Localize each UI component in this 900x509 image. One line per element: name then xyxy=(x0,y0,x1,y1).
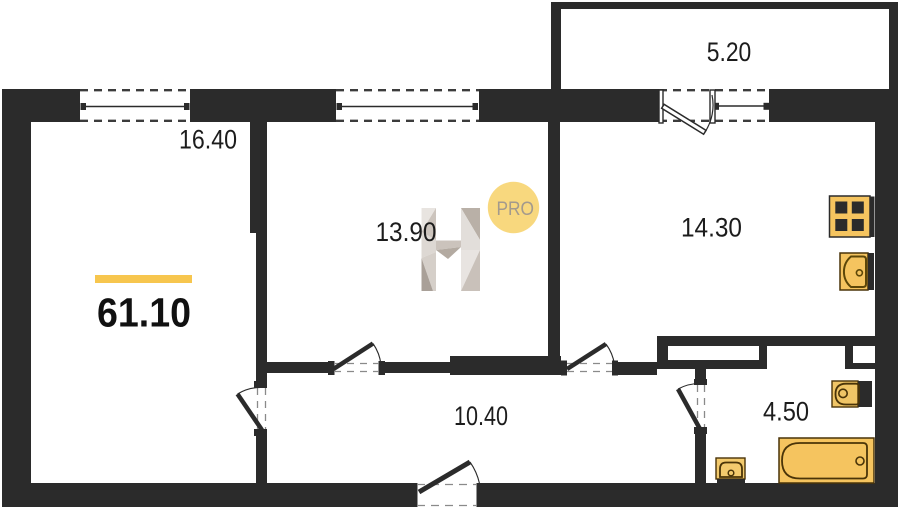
svg-text:16.40: 16.40 xyxy=(179,125,237,155)
svg-text:13.90: 13.90 xyxy=(376,217,437,247)
svg-text:4.50: 4.50 xyxy=(763,397,809,427)
svg-text:5.20: 5.20 xyxy=(707,37,752,67)
svg-text:14.30: 14.30 xyxy=(681,212,742,242)
svg-text:10.40: 10.40 xyxy=(454,401,508,431)
svg-text:PRO: PRO xyxy=(496,198,534,220)
svg-text:61.10: 61.10 xyxy=(97,289,191,335)
